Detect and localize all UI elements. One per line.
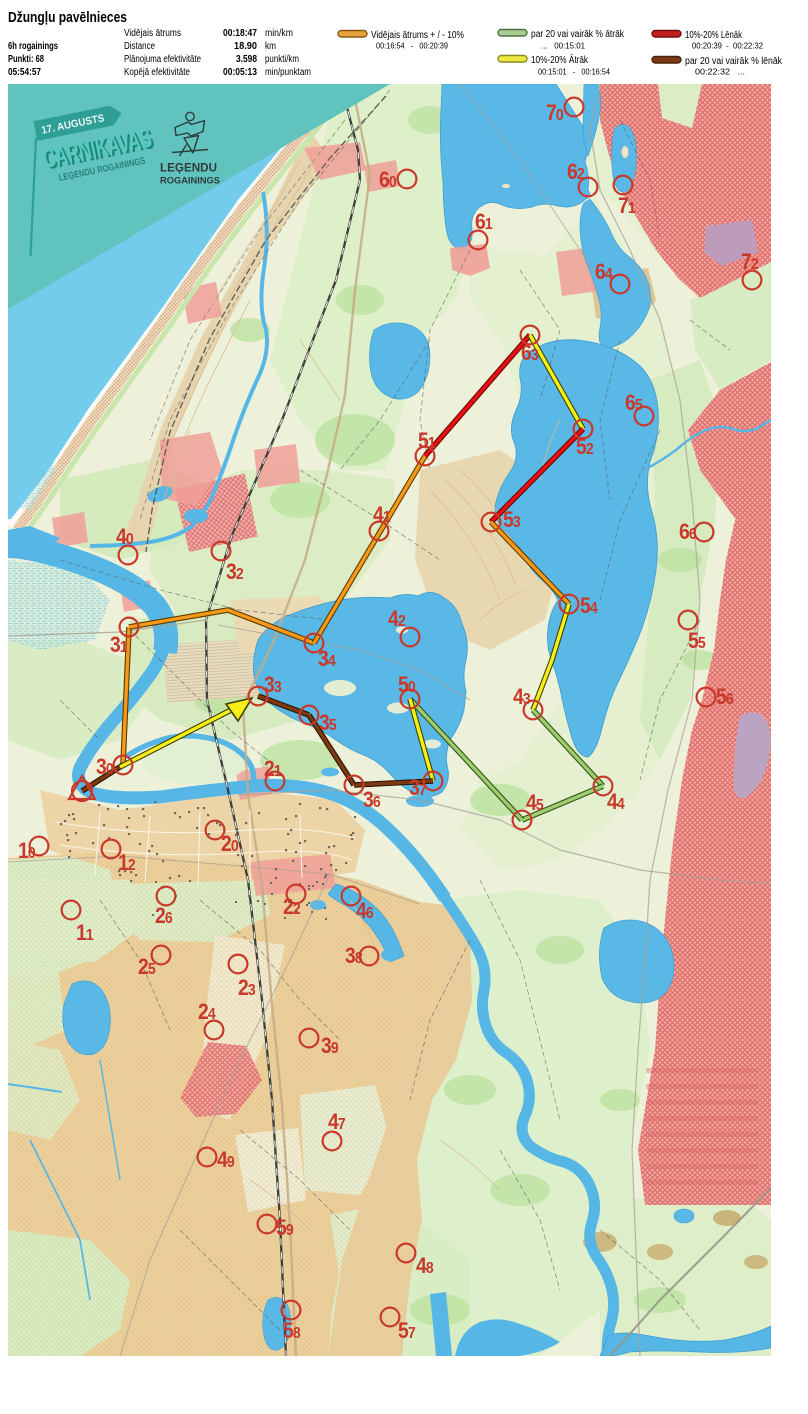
svg-text:Vidējais ātrums: Vidējais ātrums xyxy=(124,28,181,39)
svg-text:00:15:01 - 00:16:54: 00:15:01 - 00:16:54 xyxy=(538,67,610,77)
svg-text:Kopējā efektivitāte: Kopējā efektivitāte xyxy=(124,67,190,78)
svg-text:par 20 vai vairāk % lēnāk: par 20 vai vairāk % lēnāk xyxy=(685,56,783,67)
svg-text:3.598: 3.598 xyxy=(236,54,257,65)
svg-text:00:22:32 ...: 00:22:32 ... xyxy=(695,67,745,77)
svg-text:LEĢENDU: LEĢENDU xyxy=(160,163,217,175)
svg-text:km: km xyxy=(265,41,276,52)
svg-text:min/punktam: min/punktam xyxy=(265,67,311,78)
svg-text:Džungļu pavēlnieces: Džungļu pavēlnieces xyxy=(8,10,127,26)
svg-text:punkti/km: punkti/km xyxy=(265,54,299,65)
svg-text:00:16:54 - 00:20:39: 00:16:54 - 00:20:39 xyxy=(376,41,448,51)
svg-text:Distance: Distance xyxy=(124,41,155,52)
svg-text:Punkti: 68: Punkti: 68 xyxy=(8,54,44,65)
svg-text:00:18:47: 00:18:47 xyxy=(223,28,257,39)
svg-text:Vidējais ātrums + / - 10%: Vidējais ātrums + / - 10% xyxy=(371,30,464,41)
svg-text:10%-20% Ātrāk: 10%-20% Ātrāk xyxy=(531,54,589,66)
svg-text:par 20 vai vairāk % ātrāk: par 20 vai vairāk % ātrāk xyxy=(531,29,625,40)
svg-text:6h rogainings: 6h rogainings xyxy=(8,41,58,52)
svg-text:... 00:15:01: ... 00:15:01 xyxy=(541,41,585,51)
svg-text:05:54:57: 05:54:57 xyxy=(8,67,41,78)
svg-text:00:20:39 - 00:22:32: 00:20:39 - 00:22:32 xyxy=(692,41,763,51)
svg-text:min/km: min/km xyxy=(265,28,293,39)
svg-text:Plānojuma efektivitāte: Plānojuma efektivitāte xyxy=(124,54,201,65)
svg-text:00:05:13: 00:05:13 xyxy=(223,67,257,78)
svg-text:ROGAININGS: ROGAININGS xyxy=(160,176,220,187)
svg-text:10%-20% Lēnāk: 10%-20% Lēnāk xyxy=(685,30,743,41)
svg-text:18.90: 18.90 xyxy=(234,41,257,52)
